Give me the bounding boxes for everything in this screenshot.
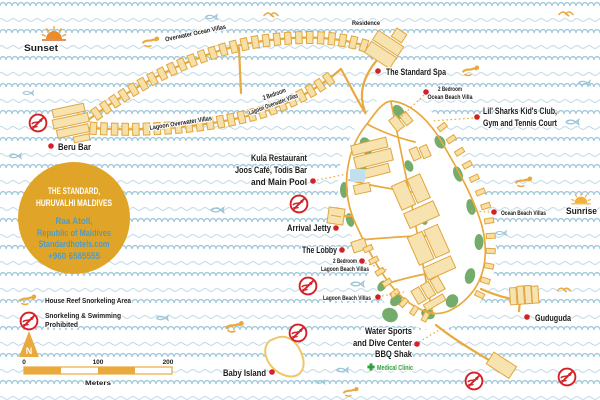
villa-structure: [111, 123, 118, 135]
label-kula-line1: Kula Restaurant: [251, 153, 308, 164]
villa-structure: [251, 36, 259, 49]
villa-structure: [216, 115, 225, 128]
poi-dot-kula: [310, 178, 316, 184]
label-medical-clinic: Medical Clinic: [377, 365, 413, 372]
villa-structure: [284, 32, 291, 44]
villa-structure: [486, 248, 495, 254]
resort-address-line2: Republic of Maldives: [37, 228, 111, 238]
label-residence: Residence: [352, 20, 380, 27]
label-lil-sharks-line2: Gym and Tennis Court: [483, 118, 558, 129]
villa-structure: [273, 33, 281, 46]
poi-dot-arrival-jetty: [333, 225, 339, 231]
villa-structure: [338, 34, 346, 47]
poi-dot-lobby: [339, 247, 345, 253]
label-standard-spa: The Standard Spa: [386, 67, 447, 78]
label-guduguda: Guduguda: [535, 313, 572, 324]
label-2br-ocean-beach-line2: Ocean Beach Villa: [428, 94, 473, 101]
guduguda-structure: [509, 285, 539, 305]
poi-dot-ocean-beach-villas: [491, 209, 497, 215]
label-2br-ocean-beach-line1: 2 Bedroom: [438, 86, 462, 93]
villa-structure: [486, 233, 495, 238]
poi-dot-2br-lagoon-beach: [359, 258, 365, 264]
label-sunrise: Sunrise: [566, 206, 597, 217]
resort-website: Standardhotels.com: [39, 239, 110, 249]
no-swimming-icon: [291, 196, 308, 213]
label-lil-sharks-line1: Lil' Sharks Kid's Club,: [483, 106, 557, 117]
legend-prohibited-line1: Snorkeling & Swimming: [45, 313, 121, 320]
scale-unit-label: Meters: [85, 380, 111, 387]
no-swimming-icon: [559, 369, 576, 386]
poi-dot-guduguda: [524, 314, 530, 320]
poi-dot-beru-bar: [48, 143, 54, 149]
label-water-sports-line1: Water Sports: [365, 326, 412, 337]
resort-map: THE STANDARD, HURUVALHI MALDIVES Raa Ato…: [0, 0, 600, 400]
villa-structure: [328, 32, 336, 45]
villa-structure: [317, 32, 324, 44]
resort-name-line2: HURUVALHI MALDIVES: [36, 198, 112, 208]
resort-name-line1: THE STANDARD,: [48, 186, 100, 196]
label-2br-lagoon-beach-line1: 2 Bedroom: [333, 258, 357, 265]
label-beru-bar: Beru Bar: [58, 142, 91, 153]
scale-tick-0: 0: [22, 359, 26, 366]
label-water-sports-line2: and Dive Center: [353, 338, 412, 349]
scale-tick-200: 200: [163, 359, 174, 366]
label-kula-line2: Joos Café, Todis Bar: [235, 165, 307, 176]
scale-tick-100: 100: [93, 359, 104, 366]
no-swimming-icon: [30, 115, 47, 132]
label-baby-island: Baby Island: [223, 368, 266, 379]
main-pool: [350, 169, 365, 182]
resort-address-line1: Raa Atoll,: [56, 216, 93, 226]
label-water-sports-line3: BBQ Shak: [375, 349, 413, 360]
resort-phone: +960 6585555: [48, 251, 100, 261]
info-circle: THE STANDARD, HURUVALHI MALDIVES Raa Ato…: [18, 162, 130, 274]
villa-structure: [90, 122, 97, 134]
label-arrival-jetty: Arrival Jetty: [287, 223, 332, 234]
villa-structure: [262, 34, 270, 47]
villa-structure: [133, 123, 140, 135]
label-2br-lagoon-beach-line2: Lagoon Beach Villas: [321, 266, 369, 273]
villa-structure: [122, 123, 129, 135]
north-arrow-label: N: [26, 346, 33, 356]
label-the-lobby: The Lobby: [302, 245, 338, 256]
label-ocean-beach-villas: Ocean Beach Villas: [501, 210, 546, 217]
poi-dot-spa: [375, 68, 381, 74]
poi-dot-water-sports: [414, 341, 420, 347]
label-sunset: Sunset: [24, 43, 59, 54]
no-swimming-icon: [466, 373, 483, 390]
villa-structure: [484, 218, 494, 224]
no-swimming-icon: [300, 278, 317, 295]
poi-dot-baby-island: [269, 369, 275, 375]
label-kula-line3: and Main Pool: [251, 177, 307, 188]
villa-structure: [295, 32, 302, 44]
villa-structure: [100, 123, 107, 135]
villa-structure: [484, 263, 494, 270]
poi-dot-lil-sharks: [474, 114, 480, 120]
villa-structure: [306, 31, 313, 43]
poi-dot-lagoon-beach-villas: [375, 294, 381, 300]
legend-house-reef-label: House Reef Snorkeling Area: [45, 298, 131, 305]
no-swimming-icon: [21, 313, 38, 330]
no-swimming-icon: [290, 325, 307, 342]
label-lagoon-beach-villas: Lagoon Beach Villas: [323, 295, 371, 302]
legend-prohibited-line2: Prohibited: [45, 322, 78, 329]
